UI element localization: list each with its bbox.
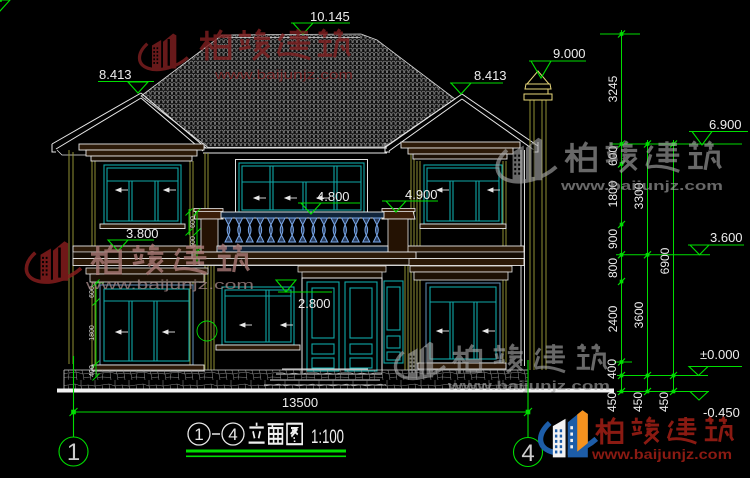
svg-text:3.600: 3.600 bbox=[710, 230, 743, 245]
svg-text:6.900: 6.900 bbox=[709, 117, 742, 132]
svg-text:www.baijunjz.com: www.baijunjz.com bbox=[591, 446, 732, 462]
svg-text:4.900: 4.900 bbox=[405, 187, 438, 202]
svg-text:6900: 6900 bbox=[658, 247, 672, 274]
svg-text:1800: 1800 bbox=[89, 325, 96, 341]
svg-text:450: 450 bbox=[631, 392, 645, 412]
svg-text:www.baijunjz.com: www.baijunjz.com bbox=[214, 68, 353, 82]
svg-text:450: 450 bbox=[605, 392, 619, 412]
svg-text:8.413: 8.413 bbox=[474, 68, 507, 83]
svg-text:-0.450: -0.450 bbox=[703, 405, 740, 420]
svg-text:800: 800 bbox=[606, 258, 620, 278]
svg-text:4: 4 bbox=[228, 425, 237, 444]
svg-text:4.800: 4.800 bbox=[317, 189, 350, 204]
svg-text:900: 900 bbox=[606, 229, 620, 249]
svg-text:10.145: 10.145 bbox=[310, 9, 350, 24]
svg-text:9.000: 9.000 bbox=[553, 46, 586, 61]
svg-text:8.413: 8.413 bbox=[99, 67, 132, 82]
svg-text:±0.000: ±0.000 bbox=[700, 347, 740, 362]
svg-text:400: 400 bbox=[605, 359, 619, 379]
svg-text:3245: 3245 bbox=[606, 75, 620, 102]
svg-text:2.800: 2.800 bbox=[298, 296, 331, 311]
svg-text:4: 4 bbox=[521, 440, 534, 467]
svg-text:www.baijunjz.com: www.baijunjz.com bbox=[446, 379, 610, 393]
svg-text:3.800: 3.800 bbox=[126, 226, 159, 241]
svg-text:1: 1 bbox=[194, 425, 203, 444]
svg-text:600: 600 bbox=[190, 216, 197, 228]
svg-text:2400: 2400 bbox=[606, 305, 620, 332]
svg-text:13500: 13500 bbox=[282, 395, 318, 410]
svg-text:400: 400 bbox=[89, 365, 96, 377]
svg-text:3600: 3600 bbox=[632, 301, 646, 328]
svg-text:www.baijunjz.com: www.baijunjz.com bbox=[84, 278, 254, 292]
svg-text:450: 450 bbox=[657, 392, 671, 412]
svg-text:1:100: 1:100 bbox=[311, 427, 344, 448]
svg-text:1: 1 bbox=[67, 439, 80, 466]
svg-text:www.baijunjz.com: www.baijunjz.com bbox=[560, 178, 723, 193]
